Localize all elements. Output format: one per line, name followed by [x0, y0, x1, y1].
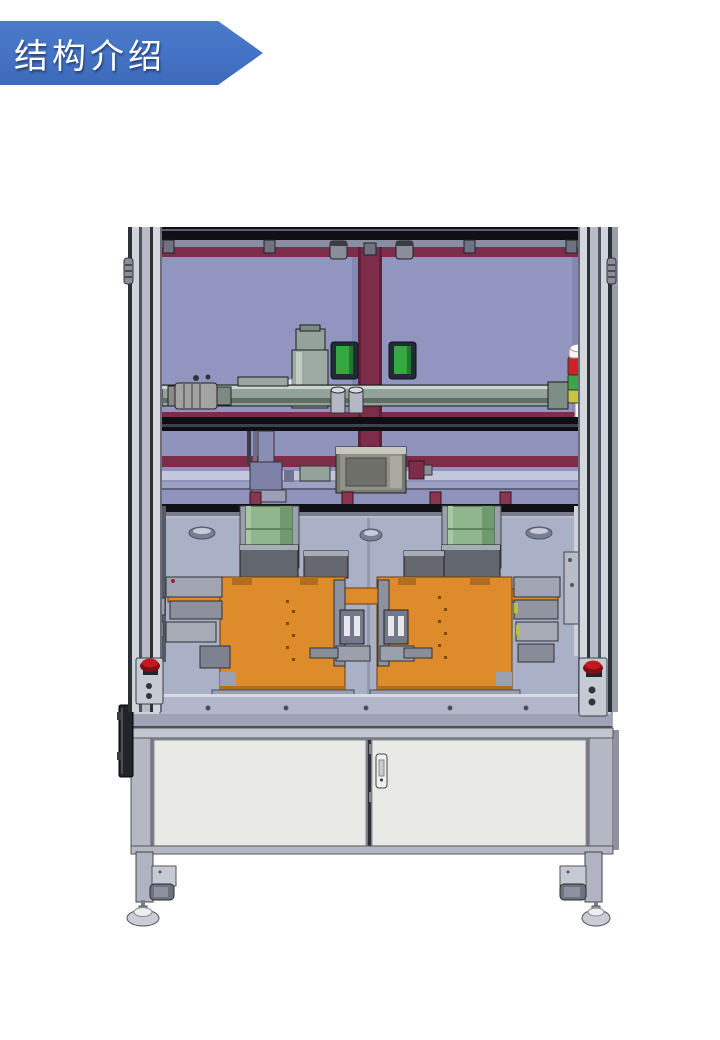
cabinet-door-left: [154, 740, 366, 846]
frame-post-right: [578, 227, 618, 712]
slide: 结构介绍: [0, 0, 720, 1040]
table-apron: [128, 694, 612, 730]
cabinet-door-right: [372, 740, 586, 846]
emergency-stop-left: [136, 658, 163, 704]
leveling-foot-right: [582, 902, 610, 926]
legs-and-feet: [127, 852, 610, 926]
leveling-foot-left: [127, 900, 159, 926]
controller-box: [336, 447, 406, 493]
sensor-window-left: [331, 342, 358, 379]
separator-bar-upper: [130, 417, 610, 432]
emergency-stop-right: [579, 658, 607, 716]
table-top-bar: [128, 504, 612, 518]
frame-post-left: [124, 227, 162, 712]
sensor-window-right: [389, 342, 416, 379]
left-fixture-plate: [220, 577, 345, 692]
left-leg-junction-box: [117, 705, 133, 777]
mid-level-assembly: [148, 431, 592, 505]
door-handle: [376, 754, 387, 788]
machine-figure: [0, 0, 720, 1040]
right-slide-stack: [514, 577, 560, 662]
